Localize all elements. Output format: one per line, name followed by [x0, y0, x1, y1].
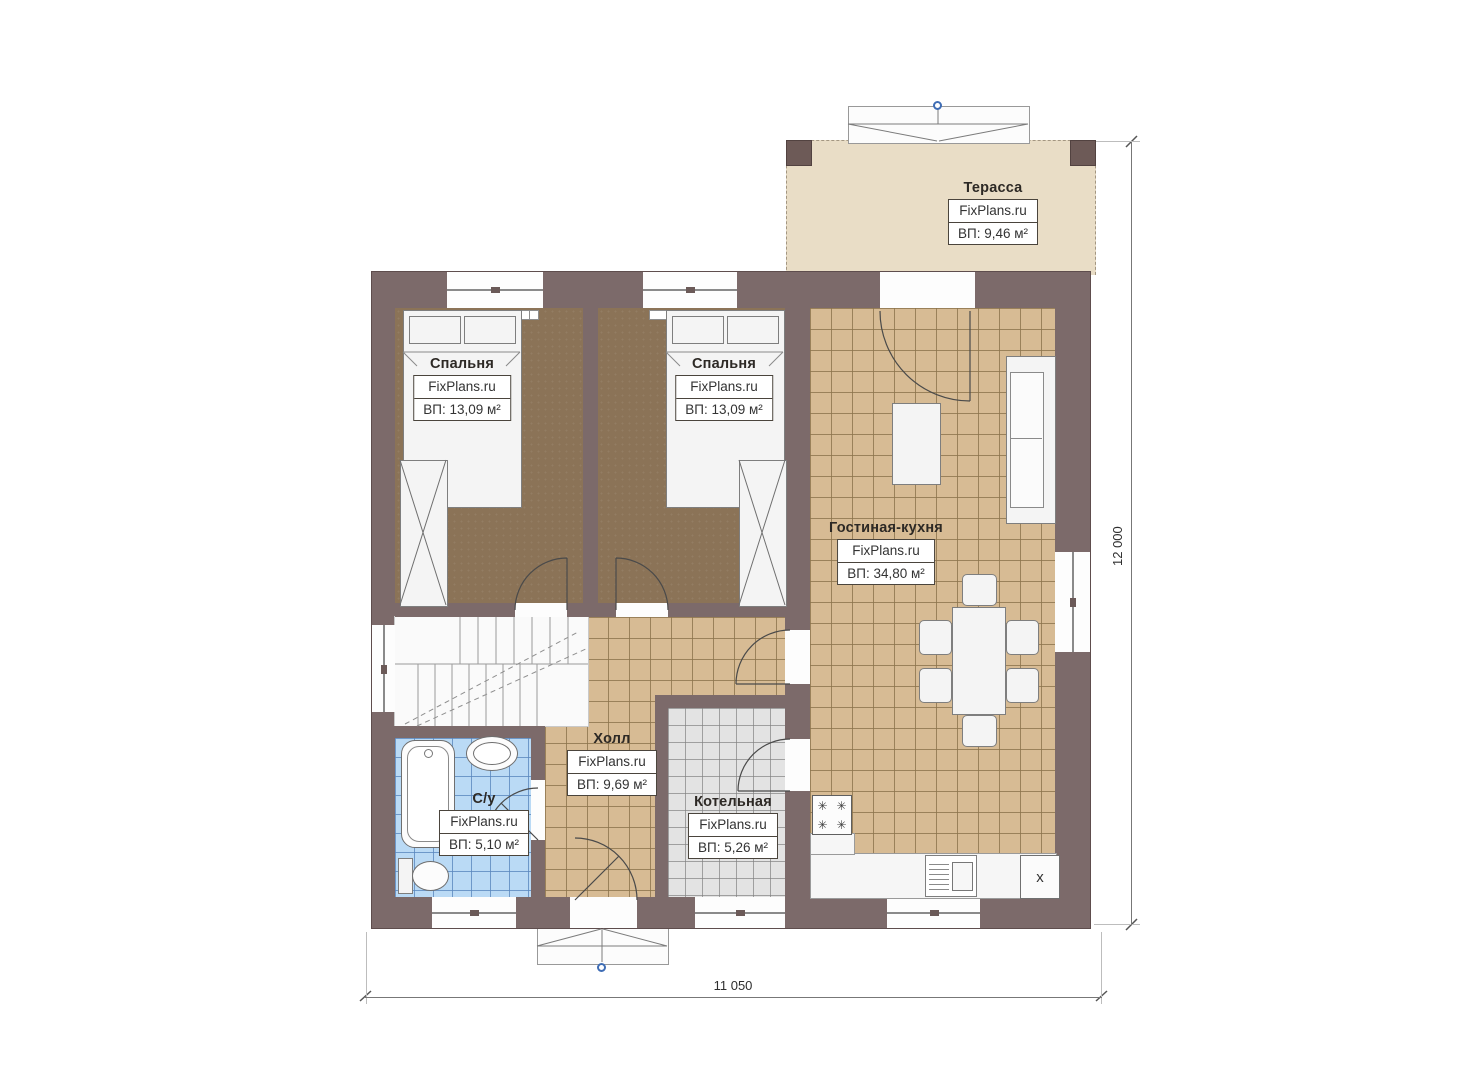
room-label-boiler: Котельная FixPlans.ru ВП: 5,26 м²	[688, 794, 778, 859]
room-name: Терасса	[948, 180, 1038, 196]
stair-treads	[395, 617, 588, 726]
room-area: ВП: 5,26 м²	[689, 837, 777, 859]
terrace-steps-lines	[848, 107, 1028, 141]
room-label-box: FixPlans.ru ВП: 5,26 м²	[688, 813, 778, 859]
room-label-box: FixPlans.ru ВП: 34,80 м²	[837, 539, 935, 585]
room-label-bathroom: С/у FixPlans.ru ВП: 5,10 м²	[439, 791, 529, 856]
room-label-hall: Холл FixPlans.ru ВП: 9,69 м²	[567, 731, 657, 796]
room-label-box: FixPlans.ru ВП: 13,09 м²	[413, 375, 511, 421]
room-brand: FixPlans.ru	[689, 814, 777, 837]
room-area: ВП: 9,69 м²	[568, 774, 656, 796]
porch-lines	[537, 929, 667, 962]
room-name: Котельная	[688, 794, 778, 810]
extension-line	[1101, 932, 1102, 1004]
room-brand: FixPlans.ru	[949, 200, 1037, 223]
room-name: Холл	[567, 731, 657, 747]
bedroom1-door-swing	[515, 558, 567, 610]
room-label-bedroom1: Спальня FixPlans.ru ВП: 13,09 м²	[413, 356, 511, 421]
entrance-door-swing	[575, 838, 637, 900]
dimension-ticks	[360, 136, 1137, 1001]
room-area: ВП: 5,10 м²	[440, 834, 528, 856]
extension-line	[1094, 924, 1140, 925]
extension-line	[1096, 141, 1140, 142]
hall-door-swing	[736, 630, 790, 684]
wardrobe-cross-lines	[400, 460, 785, 605]
room-label-box: FixPlans.ru ВП: 9,46 м²	[948, 199, 1038, 245]
room-label-living: Гостиная-кухня FixPlans.ru ВП: 34,80 м²	[829, 520, 943, 585]
room-label-bedroom2: Спальня FixPlans.ru ВП: 13,09 м²	[675, 356, 773, 421]
room-area: ВП: 34,80 м²	[838, 563, 934, 585]
room-area: ВП: 13,09 м²	[676, 399, 772, 421]
room-brand: FixPlans.ru	[440, 811, 528, 834]
room-label-terrace: Терасса FixPlans.ru ВП: 9,46 м²	[948, 180, 1038, 245]
extension-line	[366, 932, 367, 1004]
room-label-box: FixPlans.ru ВП: 9,69 м²	[567, 750, 657, 796]
marker-dot-top	[933, 101, 942, 110]
terrace-door-swing	[880, 311, 970, 401]
room-brand: FixPlans.ru	[838, 540, 934, 563]
boiler-door-swing	[738, 739, 790, 791]
dimension-label-width: 11 050	[714, 978, 753, 993]
room-area: ВП: 9,46 м²	[949, 223, 1037, 245]
room-brand: FixPlans.ru	[414, 376, 510, 399]
room-name: Гостиная-кухня	[829, 520, 943, 536]
dimension-line-bottom	[365, 997, 1102, 998]
room-name: С/у	[439, 791, 529, 807]
dimension-label-height: 12 000	[1110, 526, 1125, 566]
room-brand: FixPlans.ru	[568, 751, 656, 774]
floor-plan: ✳ ✳ ✳ ✳ x	[0, 0, 1474, 1080]
room-name: Спальня	[675, 356, 773, 372]
room-label-box: FixPlans.ru ВП: 13,09 м²	[675, 375, 773, 421]
bedroom2-door-swing	[616, 558, 668, 610]
room-name: Спальня	[413, 356, 511, 372]
dimension-line-right	[1131, 142, 1132, 925]
room-area: ВП: 13,09 м²	[414, 399, 510, 421]
room-label-box: FixPlans.ru ВП: 5,10 м²	[439, 810, 529, 856]
plan-linework-overlay	[0, 0, 1474, 1080]
marker-dot-bottom	[597, 963, 606, 972]
room-brand: FixPlans.ru	[676, 376, 772, 399]
